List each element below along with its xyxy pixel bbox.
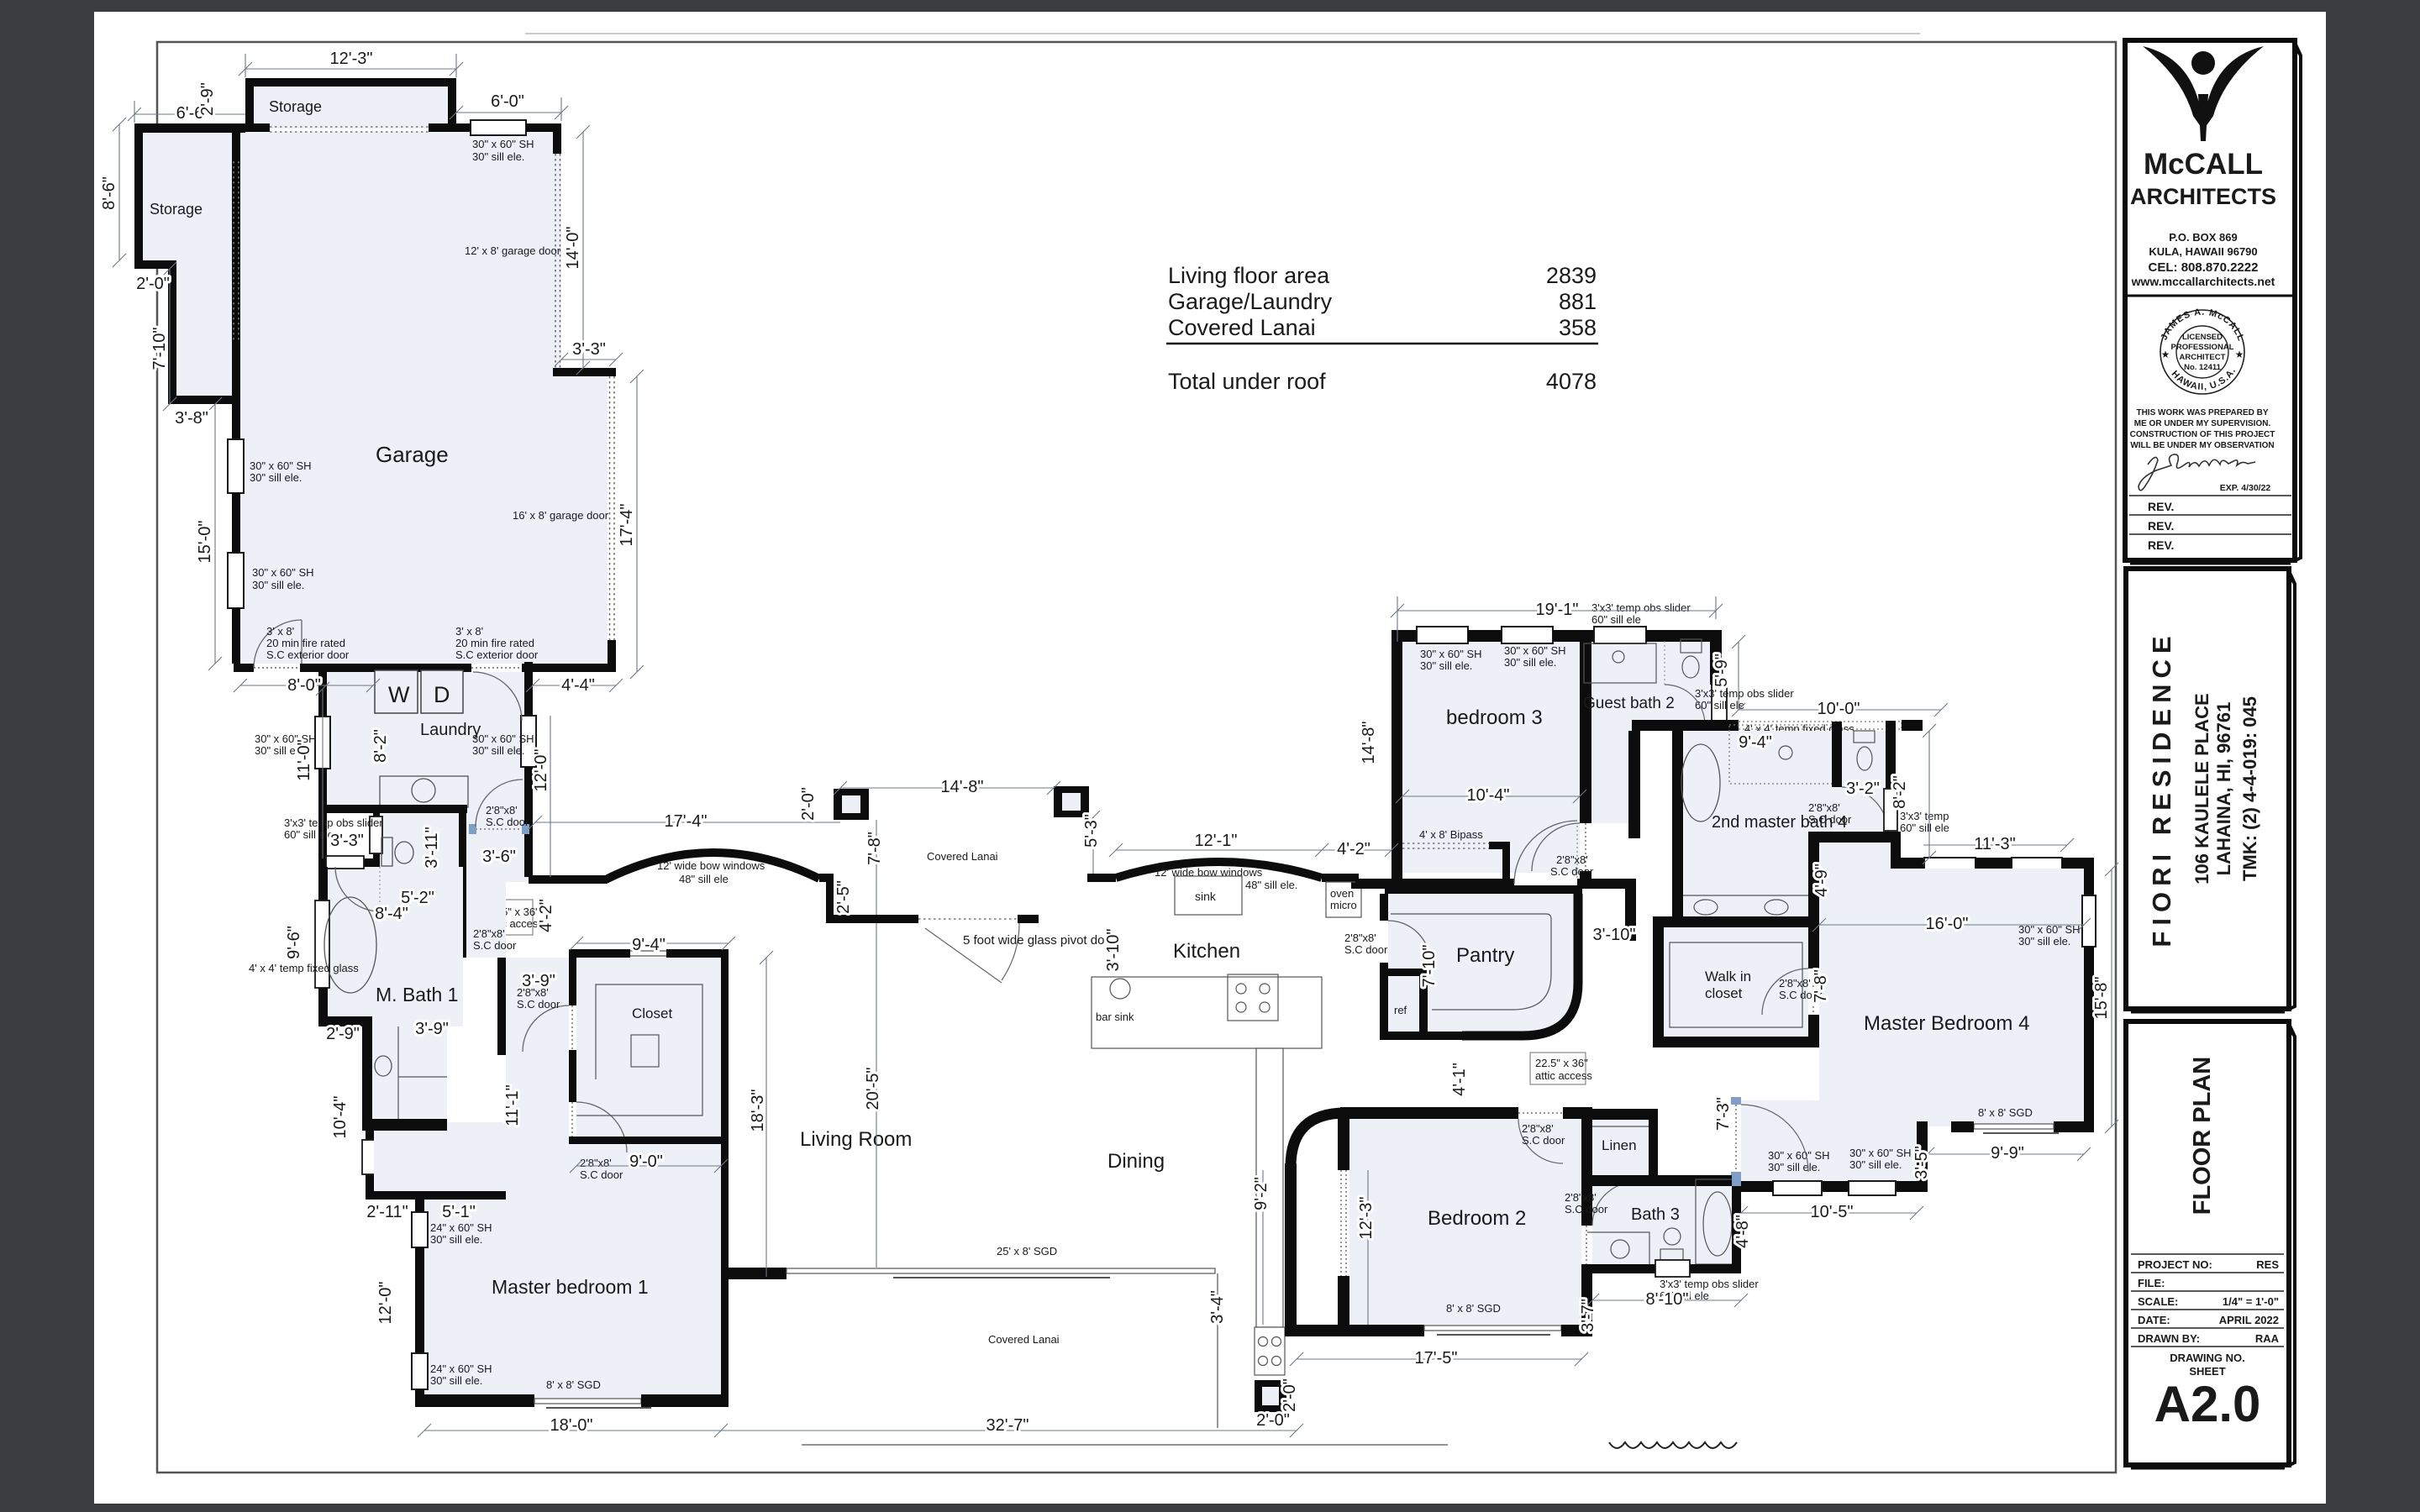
svg-text:9'-0": 9'-0" — [629, 1152, 663, 1171]
svg-text:9'-4": 9'-4" — [632, 936, 665, 954]
svg-text:REV.: REV. — [2148, 500, 2174, 513]
svg-text:2'8"x8': 2'8"x8' — [1344, 932, 1376, 944]
svg-text:DATE:: DATE: — [2138, 1314, 2170, 1326]
svg-text:Master bedroom 1: Master bedroom 1 — [492, 1276, 649, 1298]
svg-text:30" x 60" SH: 30" x 60" SH — [1849, 1147, 1912, 1159]
svg-text:16' x 8' garage door: 16' x 8' garage door — [513, 509, 609, 522]
svg-text:16'-0": 16'-0" — [1926, 915, 1969, 933]
svg-text:WILL BE UNDER MY OBSERVATION: WILL BE UNDER MY OBSERVATION — [2130, 441, 2274, 450]
svg-text:Master Bedroom 4: Master Bedroom 4 — [1864, 1012, 2029, 1035]
svg-text:12'-0": 12'-0" — [532, 749, 550, 792]
svg-text:oven: oven — [1330, 887, 1354, 900]
svg-text:2'8"x8': 2'8"x8' — [486, 804, 518, 816]
svg-text:1/4" = 1'-0": 1/4" = 1'-0" — [2223, 1295, 2279, 1308]
svg-text:3'x3' temp obs slider: 3'x3' temp obs slider — [1591, 601, 1691, 614]
svg-text:25' x 8' SGD: 25' x 8' SGD — [997, 1245, 1057, 1257]
svg-text:14'-8": 14'-8" — [941, 778, 984, 796]
svg-text:Linen: Linen — [1602, 1137, 1637, 1153]
svg-text:8'-2": 8'-2" — [1891, 775, 1909, 809]
svg-text:DRAWING NO.: DRAWING NO. — [2170, 1352, 2245, 1364]
svg-text:30" sill ele.: 30" sill ele. — [1768, 1161, 1820, 1173]
svg-text:3'x3' temp: 3'x3' temp — [1900, 810, 1949, 822]
svg-text:REV.: REV. — [2148, 538, 2174, 552]
svg-text:9'-4": 9'-4" — [1739, 733, 1772, 752]
svg-text:★: ★ — [2235, 349, 2244, 360]
svg-text:FLOOR PLAN: FLOOR PLAN — [2189, 1057, 2216, 1215]
svg-text:11'-3": 11'-3" — [1974, 835, 2015, 853]
svg-text:10'-5": 10'-5" — [1811, 1203, 1854, 1221]
svg-text:No. 12411: No. 12411 — [2184, 363, 2222, 372]
svg-text:7'-8": 7'-8" — [1812, 969, 1830, 1003]
svg-text:8'-0": 8'-0" — [287, 676, 321, 695]
svg-text:30" sill ele.: 30" sill ele. — [1420, 659, 1472, 672]
svg-text:30" x 60" SH: 30" x 60" SH — [472, 732, 534, 745]
svg-text:18'-3": 18'-3" — [749, 1089, 767, 1132]
svg-text:PROJECT NO:: PROJECT NO: — [2138, 1258, 2212, 1271]
svg-text:Covered Lanai: Covered Lanai — [1168, 315, 1316, 340]
svg-text:Total under roof: Total under roof — [1168, 369, 1326, 394]
svg-text:30" sill ele.: 30" sill ele. — [1849, 1158, 1902, 1171]
svg-text:2'-0": 2'-0" — [136, 275, 170, 293]
svg-text:3' x 8': 3' x 8' — [266, 625, 294, 638]
svg-text:Living Room: Living Room — [800, 1128, 912, 1151]
svg-text:Storage: Storage — [150, 201, 203, 218]
svg-text:10'-4": 10'-4" — [331, 1096, 350, 1139]
svg-text:S.C door: S.C door — [486, 816, 529, 828]
svg-text:30" x 60" SH: 30" x 60" SH — [1768, 1149, 1830, 1162]
svg-text:12' x 8' garage door: 12' x 8' garage door — [465, 244, 561, 257]
svg-text:8'-6": 8'-6" — [100, 176, 118, 210]
svg-text:7'-8": 7'-8" — [865, 832, 884, 865]
svg-text:P.O. BOX 869: P.O. BOX 869 — [2169, 231, 2237, 244]
svg-text:5'-3": 5'-3" — [1082, 814, 1101, 848]
svg-text:3'-4": 3'-4" — [1208, 1290, 1227, 1324]
svg-text:7'-10": 7'-10" — [1420, 945, 1439, 988]
svg-text:17'-5": 17'-5" — [1415, 1349, 1458, 1368]
svg-text:24" x 60" SH: 24" x 60" SH — [430, 1221, 492, 1234]
svg-text:RAA: RAA — [2255, 1332, 2280, 1345]
svg-text:S.C door: S.C door — [1344, 943, 1388, 956]
svg-text:15'-0": 15'-0" — [196, 521, 214, 564]
svg-text:A2.0: A2.0 — [2154, 1376, 2261, 1432]
svg-text:sink: sink — [1195, 890, 1217, 903]
svg-text:60" sill ele: 60" sill ele — [284, 828, 334, 841]
svg-text:60" sill ele: 60" sill ele — [1591, 613, 1641, 626]
svg-text:14'-0": 14'-0" — [564, 227, 582, 270]
svg-text:2'-5": 2'-5" — [834, 880, 853, 914]
svg-text:9'-6": 9'-6" — [285, 926, 303, 959]
svg-text:EXP. 4/30/22: EXP. 4/30/22 — [2220, 483, 2271, 493]
svg-text:30" sill ele.: 30" sill ele. — [430, 1374, 482, 1387]
svg-text:30" x 60" SH: 30" x 60" SH — [250, 459, 312, 472]
svg-text:30" sill ele.: 30" sill ele. — [472, 150, 524, 163]
svg-text:Guest bath 2: Guest bath 2 — [1583, 695, 1675, 712]
svg-text:TMK: (2) 4-4-019: 045: TMK: (2) 4-4-019: 045 — [2239, 696, 2260, 881]
svg-text:2'-0": 2'-0" — [1256, 1411, 1290, 1430]
svg-text:18'-0": 18'-0" — [550, 1416, 593, 1435]
svg-text:17'-4": 17'-4" — [618, 504, 636, 547]
svg-text:S.C door: S.C door — [1808, 813, 1852, 826]
svg-text:6'-0": 6'-0" — [491, 92, 524, 111]
svg-text:LICENSED: LICENSED — [2182, 333, 2223, 342]
svg-text:30" x 60" SH: 30" x 60" SH — [252, 566, 314, 579]
svg-text:8'-4": 8'-4" — [375, 905, 408, 923]
svg-text:3'-3": 3'-3" — [330, 832, 364, 850]
svg-text:12' wide bow windows: 12' wide bow windows — [657, 859, 765, 872]
svg-text:11'-0": 11'-0" — [295, 739, 313, 780]
svg-text:11'-1": 11'-1" — [503, 1084, 522, 1126]
svg-text:4078: 4078 — [1546, 369, 1597, 394]
svg-text:Covered Lanai: Covered Lanai — [988, 1333, 1060, 1346]
svg-text:3' x 8': 3' x 8' — [455, 625, 483, 638]
svg-text:RES: RES — [2256, 1258, 2279, 1271]
svg-text:2'-9": 2'-9" — [326, 1025, 360, 1043]
svg-text:Bedroom 2: Bedroom 2 — [1428, 1207, 1526, 1230]
svg-text:PROFESSIONAL: PROFESSIONAL — [2171, 343, 2234, 352]
svg-text:60" sill ele: 60" sill ele — [1900, 822, 1949, 834]
svg-text:ARCHITECTS: ARCHITECTS — [2130, 184, 2276, 209]
svg-text:S.C door: S.C door — [473, 939, 517, 952]
svg-text:358: 358 — [1559, 315, 1597, 340]
svg-text:5'-9": 5'-9" — [1712, 654, 1731, 687]
svg-text:4'-4": 4'-4" — [561, 676, 595, 695]
svg-text:12'-3": 12'-3" — [1357, 1197, 1376, 1240]
svg-text:Living floor area: Living floor area — [1168, 263, 1330, 288]
svg-text:bar sink: bar sink — [1096, 1011, 1134, 1023]
svg-text:McCALL: McCALL — [2144, 148, 2263, 181]
svg-text:12'-1": 12'-1" — [1195, 832, 1238, 850]
svg-text:3'x3' temp obs slider: 3'x3' temp obs slider — [284, 816, 383, 829]
svg-text:2'8"x8': 2'8"x8' — [1808, 801, 1840, 814]
svg-text:3'-6": 3'-6" — [482, 848, 516, 866]
svg-text:3'-9": 3'-9" — [522, 972, 555, 990]
svg-text:48" sill ele.: 48" sill ele. — [1245, 879, 1297, 891]
svg-text:★: ★ — [2161, 349, 2170, 360]
svg-text:2'8"x8': 2'8"x8' — [473, 927, 505, 940]
svg-text:ARCHITECT: ARCHITECT — [2180, 353, 2226, 362]
svg-text:2839: 2839 — [1546, 263, 1597, 288]
svg-text:2'8"x8': 2'8"x8' — [1779, 977, 1811, 990]
svg-text:www.mccallarchitects.net: www.mccallarchitects.net — [2131, 275, 2275, 288]
svg-text:Storage: Storage — [269, 98, 322, 115]
svg-text:S.C door: S.C door — [517, 998, 560, 1011]
svg-text:9'-9": 9'-9" — [1991, 1144, 2024, 1163]
svg-text:8' x 8' SGD: 8' x 8' SGD — [546, 1378, 601, 1391]
svg-text:ME OR UNDER MY SUPERVISION.: ME OR UNDER MY SUPERVISION. — [2134, 419, 2271, 428]
svg-text:7'-3": 7'-3" — [1714, 1097, 1733, 1131]
svg-text:2'8"x8': 2'8"x8' — [1556, 853, 1588, 866]
svg-text:APRIL 2022: APRIL 2022 — [2219, 1314, 2279, 1326]
svg-text:30" x 60" SH: 30" x 60" SH — [1504, 644, 1566, 657]
svg-text:2'-11": 2'-11" — [366, 1203, 408, 1221]
svg-text:30" sill ele.: 30" sill ele. — [252, 579, 304, 591]
svg-text:DRAWN BY:: DRAWN BY: — [2138, 1332, 2200, 1345]
svg-text:3'-7": 3'-7" — [1579, 1299, 1597, 1332]
svg-text:4'-1": 4'-1" — [1450, 1063, 1469, 1096]
svg-text:M. Bath 1: M. Bath 1 — [376, 984, 458, 1005]
svg-text:30" sill ele.: 30" sill ele. — [2018, 935, 2070, 948]
svg-text:19'-1": 19'-1" — [1536, 601, 1579, 619]
svg-text:attic access: attic access — [1535, 1069, 1592, 1082]
svg-text:8'-10": 8'-10" — [1646, 1290, 1689, 1309]
svg-text:30" sill ele.: 30" sill ele. — [430, 1233, 482, 1246]
svg-text:106 KAULELE PLACE: 106 KAULELE PLACE — [2191, 693, 2212, 884]
svg-text:W: W — [388, 682, 410, 707]
svg-text:881: 881 — [1559, 289, 1597, 314]
svg-text:3'-10": 3'-10" — [1593, 926, 1636, 944]
svg-text:3'-3": 3'-3" — [572, 340, 606, 359]
svg-text:Pantry: Pantry — [1456, 944, 1514, 967]
svg-text:4'-9": 4'-9" — [1812, 864, 1831, 897]
svg-text:30" sill ele.: 30" sill ele. — [1504, 656, 1556, 669]
svg-text:8' x 8' SGD: 8' x 8' SGD — [1978, 1106, 2033, 1119]
svg-text:3'-2": 3'-2" — [1846, 780, 1880, 798]
svg-text:Bath 3: Bath 3 — [1631, 1205, 1680, 1224]
svg-text:3'-5": 3'-5" — [1912, 1146, 1931, 1179]
svg-text:30" x 60" SH: 30" x 60" SH — [472, 138, 534, 150]
svg-text:S.C door: S.C door — [1565, 1203, 1608, 1215]
svg-text:S.C door: S.C door — [1522, 1134, 1565, 1147]
svg-text:10'-0": 10'-0" — [1818, 700, 1860, 718]
svg-text:10'-4": 10'-4" — [1467, 786, 1510, 805]
svg-text:Garage/Laundry: Garage/Laundry — [1168, 289, 1333, 314]
svg-text:20'-5": 20'-5" — [864, 1068, 882, 1110]
svg-text:7'-10": 7'-10" — [150, 328, 169, 370]
svg-text:12'-0": 12'-0" — [376, 1282, 395, 1325]
svg-text:3'-10": 3'-10" — [1104, 929, 1123, 972]
svg-text:30" sill ele.: 30" sill ele. — [472, 744, 524, 757]
svg-text:2'8"x8': 2'8"x8' — [580, 1157, 612, 1169]
svg-text:2'-9": 2'-9" — [198, 82, 217, 116]
svg-text:micro: micro — [1330, 899, 1357, 911]
svg-text:Closet: Closet — [632, 1005, 672, 1021]
svg-text:3'-11": 3'-11" — [423, 827, 441, 868]
svg-text:3'x3' temp obs slider: 3'x3' temp obs slider — [1695, 687, 1794, 700]
svg-text:Kitchen: Kitchen — [1173, 940, 1240, 963]
svg-text:closet: closet — [1705, 985, 1743, 1001]
svg-text:30" x 60" SH: 30" x 60" SH — [1420, 648, 1482, 660]
svg-text:D: D — [434, 682, 450, 707]
svg-text:9'-2": 9'-2" — [1252, 1177, 1270, 1210]
svg-text:FIORI RESIDENCE: FIORI RESIDENCE — [2147, 630, 2176, 947]
svg-text:20 min fire rated: 20 min fire rated — [266, 637, 345, 649]
svg-text:15'-8": 15'-8" — [2092, 977, 2111, 1020]
svg-text:30" sill ele.: 30" sill ele. — [250, 471, 302, 484]
svg-text:3'x3' temp obs slider: 3'x3' temp obs slider — [1660, 1278, 1759, 1290]
svg-text:Walk in: Walk in — [1705, 969, 1751, 984]
svg-text:4' x 4' temp fixed glass: 4' x 4' temp fixed glass — [249, 962, 359, 974]
svg-text:4' x 8' Bipass: 4' x 8' Bipass — [1419, 828, 1483, 841]
svg-text:32'-7": 32'-7" — [986, 1416, 1029, 1435]
svg-text:THIS WORK WAS PREPARED BY: THIS WORK WAS PREPARED BY — [2136, 408, 2268, 417]
svg-text:4'-8": 4'-8" — [1733, 1215, 1752, 1248]
svg-text:12'-3": 12'-3" — [330, 50, 373, 68]
svg-text:8' x 8' SGD: 8' x 8' SGD — [1446, 1302, 1501, 1315]
svg-text:4'-2": 4'-2" — [537, 899, 555, 932]
svg-text:20 min fire rated: 20 min fire rated — [455, 637, 534, 649]
svg-text:Garage: Garage — [376, 442, 449, 467]
svg-text:ref: ref — [1394, 1004, 1407, 1016]
svg-text:S.C exterior door: S.C exterior door — [455, 648, 539, 661]
svg-text:LAHAINA, HI, 96761: LAHAINA, HI, 96761 — [2213, 702, 2234, 876]
svg-text:17'-4": 17'-4" — [665, 812, 708, 831]
svg-text:FILE:: FILE: — [2138, 1277, 2165, 1289]
svg-text:5 foot wide glass pivot door: 5 foot wide glass pivot door — [963, 933, 1116, 948]
svg-text:REV.: REV. — [2148, 519, 2174, 533]
svg-text:S.C exterior door: S.C exterior door — [266, 648, 350, 661]
svg-text:2'-0": 2'-0" — [1281, 1378, 1299, 1412]
svg-text:22.5" x 36": 22.5" x 36" — [1535, 1057, 1588, 1069]
svg-text:14'-8": 14'-8" — [1360, 722, 1378, 764]
svg-text:S.C door: S.C door — [580, 1168, 623, 1181]
svg-text:bedroom 3: bedroom 3 — [1446, 706, 1543, 729]
svg-text:CONSTRUCTION OF THIS PROJECT: CONSTRUCTION OF THIS PROJECT — [2130, 430, 2275, 439]
svg-text:48" sill ele: 48" sill ele — [679, 873, 729, 885]
svg-text:2'-0": 2'-0" — [799, 787, 818, 821]
svg-text:5'-1": 5'-1" — [442, 1203, 476, 1221]
svg-text:24" x 60" SH: 24" x 60" SH — [430, 1362, 492, 1375]
svg-text:KULA, HAWAII 96790: KULA, HAWAII 96790 — [2149, 245, 2257, 258]
svg-text:CEL: 808.870.2222: CEL: 808.870.2222 — [2149, 260, 2259, 275]
svg-text:Covered Lanai: Covered Lanai — [927, 850, 998, 863]
svg-text:8'-2": 8'-2" — [371, 729, 390, 763]
svg-text:2'8"x8': 2'8"x8' — [1522, 1122, 1554, 1135]
svg-text:SCALE:: SCALE: — [2138, 1295, 2178, 1308]
svg-text:3'-9": 3'-9" — [415, 1020, 449, 1038]
svg-text:3'-8": 3'-8" — [175, 409, 208, 428]
svg-text:Dining: Dining — [1107, 1150, 1165, 1173]
svg-text:2'8"x8': 2'8"x8' — [1565, 1191, 1597, 1204]
svg-text:4'-2": 4'-2" — [1337, 840, 1370, 858]
